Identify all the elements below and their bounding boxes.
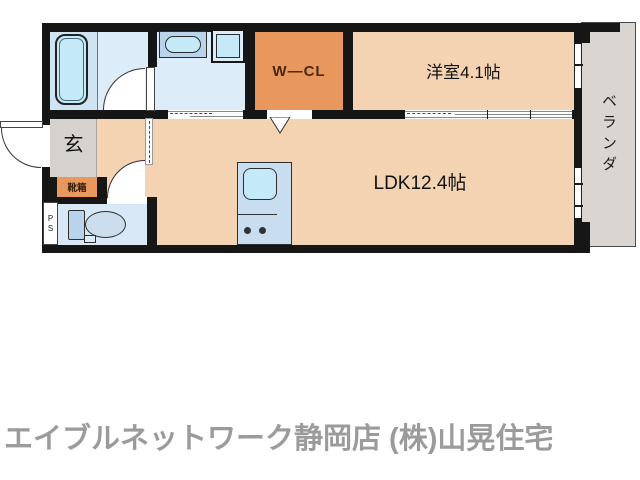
wcl-entry-arrow [268,117,292,135]
slide-track-dashed [170,113,212,114]
partition-dashed-line [149,121,150,163]
kitchen-sink [243,168,277,200]
entry-door-arc [1,128,41,168]
wall-wcl-left [245,23,255,119]
slide-track-dashed [407,113,451,114]
bathroom-door-leaf [146,67,155,111]
slide-rail [405,117,572,118]
vanity-sink [165,36,201,53]
veranda-area: ベランダ [581,22,636,247]
entry-door-opening [42,125,50,167]
wall-toilet-right [147,197,157,253]
wall-wcl-right [343,23,353,119]
stove-burner-right [259,227,266,234]
slide-rail [168,111,243,112]
bathroom-divider-line [97,31,98,110]
toilet-bowl [85,211,126,238]
agency-caption: エイブルネットワーク静岡店 (株)山晃住宅 [4,415,553,457]
toilet-seat-hinge [84,235,96,243]
toilet-door-opening [107,197,147,204]
sliding-door-yoshitsu [405,110,572,119]
genkan-label: 玄 [50,130,97,154]
kitchen-counter-divider [237,214,277,215]
window-ldk [574,168,582,218]
slide-rail [405,111,572,112]
sliding-door-washroom [168,110,243,119]
yoshitsu-label: 洋室4.1帖 [353,59,574,81]
slide-tick [487,110,488,119]
window-tick [575,64,583,66]
ldk-label: LDK12.4帖 [300,169,540,193]
shoebox-label: 靴箱 [57,180,97,194]
slide-tick [530,110,531,119]
veranda-label: ベランダ [582,23,635,246]
wall-bottom [42,245,590,253]
floorplan-image: ベランダ [0,0,640,480]
shoebox-wall-right [97,177,107,198]
window-yoshitsu [574,44,582,88]
pipe-shaft: P S [43,202,58,245]
slide-panel-line [455,114,572,115]
wall-corner-top-right [582,23,590,43]
ps-label: P S [48,214,53,234]
window-tick [575,205,583,207]
wall-top [42,23,620,32]
hall-partition [145,118,153,165]
window-tick [575,183,583,185]
entry-door-leaf [0,121,43,128]
bathtub-inner-rim [59,38,84,101]
washing-machine-drum [216,34,240,58]
bathtub [55,34,88,105]
wall-corner-bottom-right [582,222,590,253]
stove-burner-left [244,227,251,234]
slide-panel-line [190,116,243,117]
toilet-tank [68,210,85,240]
wcl-label: W—CL [255,61,343,81]
wall-bath-washroom [148,23,157,67]
shoebox-wall-left [50,177,57,198]
